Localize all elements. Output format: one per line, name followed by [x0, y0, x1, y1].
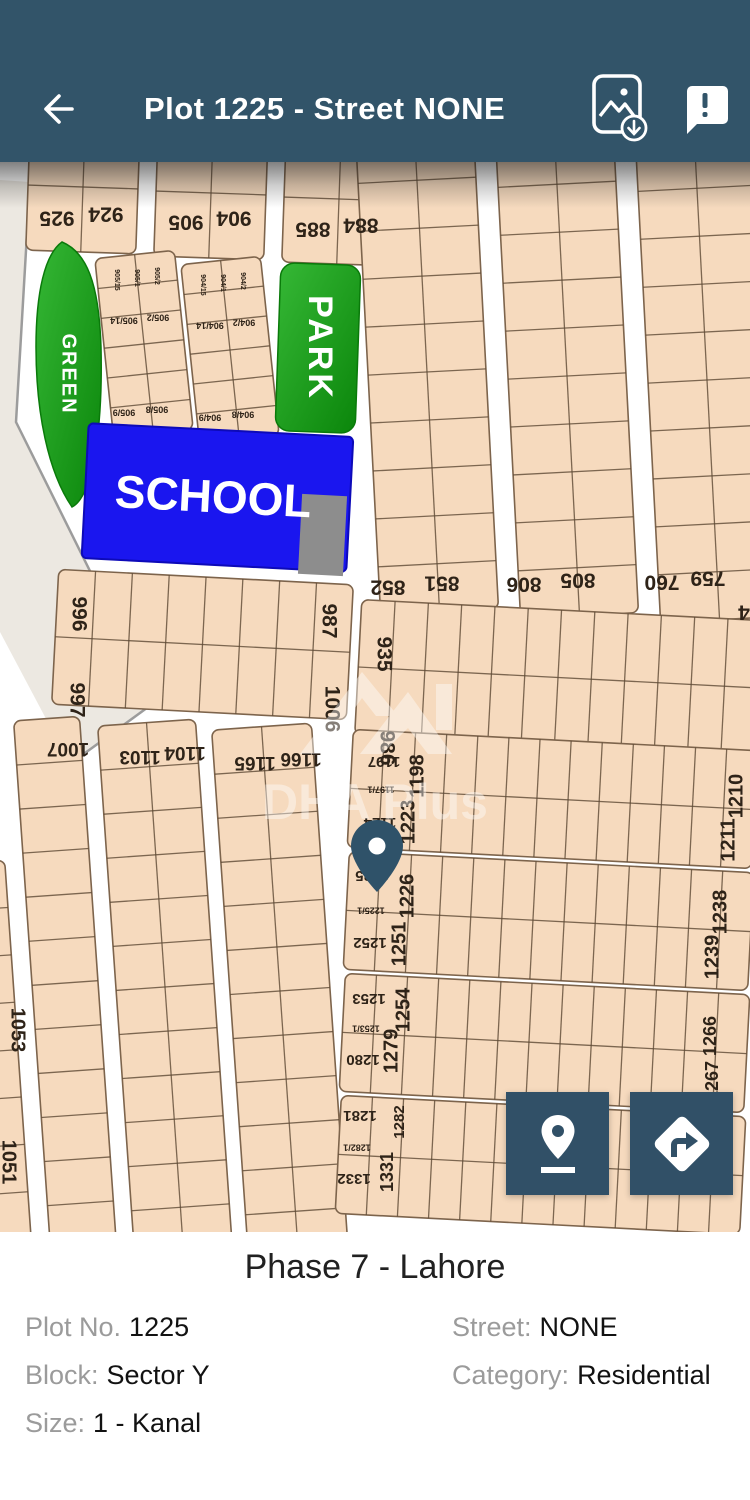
plot-label-904/8: 904/8	[232, 410, 255, 420]
plot-label-1239: 1239	[701, 935, 723, 980]
plot-details-panel: Phase 7 - Lahore Plot No.1225 Street:NON…	[0, 1232, 750, 1500]
plot-label-851: 851	[424, 571, 459, 594]
plot-label-904/14: 904/14	[196, 321, 224, 331]
plot-label-1251: 1251	[388, 922, 410, 967]
field-plot-no: Plot No.1225	[25, 1312, 189, 1343]
plot-label-905/9: 905/9	[113, 408, 136, 418]
park-area: PARK	[275, 263, 361, 434]
plot-label-997: 997	[65, 682, 88, 717]
field-label: Plot No.	[25, 1312, 121, 1342]
plot-label-904/15: 904/15	[199, 274, 206, 296]
field-value: Residential	[577, 1360, 711, 1390]
plot-label-935: 935	[372, 636, 395, 671]
plot-strip	[52, 569, 354, 719]
plot-label-760: 760	[644, 570, 679, 593]
appbar-shadow	[0, 162, 750, 208]
plot-strip	[496, 162, 639, 619]
back-button[interactable]	[22, 74, 92, 144]
plot-label-905/1: 905/1	[133, 269, 140, 287]
page-title: Plot 1225 - Street NONE	[144, 91, 505, 127]
plot-label-905/15: 905/15	[113, 269, 120, 291]
plot-label-885: 885	[295, 217, 330, 240]
plot-label-1253: 1253	[352, 990, 385, 1007]
plot-label-1279: 1279	[380, 1029, 402, 1074]
plot-label-1007: 1007	[47, 738, 89, 759]
alert-bubble-icon	[680, 82, 730, 136]
field-value: NONE	[540, 1312, 618, 1342]
park-label: PARK	[301, 295, 339, 401]
plot-label-1053: 1053	[7, 1008, 29, 1053]
field-value: Sector Y	[107, 1360, 210, 1390]
plot-label-806: 806	[506, 572, 541, 595]
plot-label-904/2: 904/2	[233, 318, 256, 328]
plot-label-1331: 1331	[377, 1152, 397, 1192]
field-label: Category:	[452, 1360, 569, 1390]
plot-label-1225/1: 1225/1	[357, 906, 385, 916]
plot-strip	[95, 250, 193, 437]
plot-label-1103: 1103	[119, 746, 160, 767]
field-street: Street:NONE	[452, 1312, 618, 1343]
plot-label-1266: 1266	[700, 1016, 720, 1056]
plot-label-904/9: 904/9	[199, 413, 222, 423]
field-value: 1225	[129, 1312, 189, 1342]
school-area: SCHOOL	[82, 423, 354, 576]
plot-label-1280: 1280	[346, 1051, 379, 1068]
save-map-image-button[interactable]	[584, 69, 654, 149]
plot-label-1253/1: 1253/1	[352, 1024, 380, 1034]
plot-label-1282/1: 1282/1	[343, 1143, 371, 1153]
phase-title: Phase 7 - Lahore	[0, 1248, 750, 1287]
field-label: Street:	[452, 1312, 532, 1342]
plot-label-905: 905	[168, 210, 203, 233]
plot-label-1332: 1332	[337, 1170, 370, 1187]
plot-label-1282: 1282	[391, 1105, 408, 1138]
field-value: 1 - Kanal	[93, 1408, 201, 1438]
app-root: Plot 1225 - Street NONE	[0, 0, 750, 1500]
back-arrow-icon	[37, 89, 77, 129]
directions-icon	[647, 1109, 717, 1179]
plot-strip	[98, 719, 233, 1232]
plot-label-884: 884	[343, 213, 378, 236]
plot-label-1165: 1165	[234, 752, 276, 773]
plot-label-1197: 1197	[368, 753, 401, 770]
app-bar: Plot 1225 - Street NONE	[0, 0, 750, 162]
plot-label-904: 904	[216, 206, 251, 229]
plot-map[interactable]: GREEN PARK SCHOOL 9259249059048858848528…	[0, 162, 750, 1232]
place-pin-icon	[527, 1111, 589, 1177]
plot-label-1226: 1226	[396, 874, 418, 919]
report-issue-button[interactable]	[676, 74, 734, 144]
plot-label-1051: 1051	[0, 1140, 20, 1185]
plot-label-1252: 1252	[353, 934, 386, 951]
plot-label-987: 987	[317, 603, 340, 638]
plot-label-904/1: 904/1	[219, 274, 226, 292]
plot-label-905/2: 905/2	[153, 267, 160, 285]
plot-label-1210: 1210	[725, 774, 747, 819]
school-label: SCHOOL	[114, 465, 313, 527]
plot-label-1238: 1238	[709, 890, 731, 935]
show-location-button[interactable]	[506, 1092, 609, 1195]
plot-label-852: 852	[370, 575, 405, 598]
field-size: Size:1 - Kanal	[25, 1408, 201, 1439]
plot-label-905/2: 905/2	[147, 313, 170, 323]
field-category: Category:Residential	[452, 1360, 711, 1391]
plot-strip	[14, 716, 117, 1232]
plot-label-1104: 1104	[164, 742, 206, 763]
plot-label-1254: 1254	[392, 987, 414, 1032]
image-download-icon	[584, 70, 654, 148]
plot-strip	[181, 256, 279, 443]
plot-label-905/14: 905/14	[110, 316, 138, 326]
plot-label-905/8: 905/8	[146, 405, 169, 415]
plot-label-4: 4	[738, 600, 750, 623]
plot-label-996: 996	[67, 596, 90, 631]
plot-label-925: 925	[39, 206, 74, 229]
field-block: Block:Sector Y	[25, 1360, 210, 1391]
plot-label-1211: 1211	[717, 818, 739, 861]
plot-strip	[636, 162, 750, 623]
plot-label-904/2: 904/2	[239, 272, 246, 290]
directions-button[interactable]	[630, 1092, 733, 1195]
field-label: Block:	[25, 1360, 99, 1390]
field-label: Size:	[25, 1408, 85, 1438]
green-label: GREEN	[58, 333, 80, 414]
plot-strip	[343, 851, 750, 990]
plot-label-1281: 1281	[343, 1107, 376, 1124]
plot-label-805: 805	[560, 568, 595, 591]
plot-label-759: 759	[690, 566, 725, 589]
